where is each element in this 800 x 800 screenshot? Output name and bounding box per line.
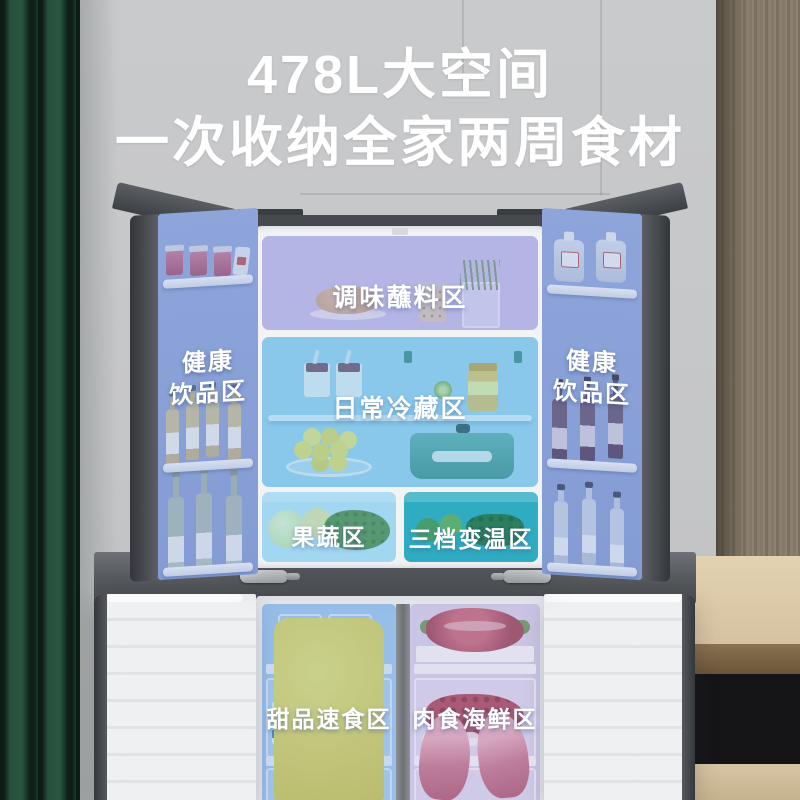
zone-seasoning-label: 调味蘸料区: [262, 278, 538, 314]
zone-seasoning: 调味蘸料区: [262, 236, 538, 330]
zone-daily: 日常冷藏区: [262, 337, 538, 487]
zone-variable-temp: 三档变温区: [404, 492, 538, 562]
fridge-right-door: 健康 饮品区: [542, 208, 670, 582]
zone-drinks-left-label: 健康 饮品区: [158, 344, 258, 412]
sideboard-shelf: [695, 644, 800, 674]
sideboard-niche: [695, 674, 800, 764]
zone-dessert: 甜品速食区: [262, 604, 396, 800]
fridge-cabinet-interior: 调味蘸料区 日常冷藏区 果蔬区: [250, 226, 550, 568]
label-line: 饮品区: [158, 375, 258, 412]
door-interior-panel: 健康 饮品区: [542, 208, 642, 580]
fridge-left-door: 健康 饮品区: [130, 208, 258, 582]
freezer-divider: [396, 604, 410, 800]
door-interior-panel: 健康 饮品区: [158, 208, 258, 580]
freezer-right-door: [544, 594, 695, 800]
headline-line-2: 一次收纳全家两周食材: [0, 98, 800, 177]
zone-produce: 果蔬区: [262, 492, 396, 562]
door-outer-shell: [642, 214, 670, 582]
product-marketing-image: 478L大空间 一次收纳全家两周食材 甜品速食区: [0, 0, 800, 800]
door-latch: [392, 228, 408, 235]
zone-meat-label: 肉食海鲜区: [410, 700, 540, 734]
sideboard-bottom: [695, 764, 800, 800]
zone-drinks-right-label: 健康 饮品区: [542, 344, 642, 412]
sideboard-cabinet: [695, 556, 800, 800]
freezer-left-door: [94, 594, 256, 800]
label-line: 饮品区: [542, 375, 642, 412]
wall-seam: [300, 193, 610, 195]
freezer-interior: 甜品速食区 肉食海鲜区: [256, 596, 546, 800]
zone-meat: 肉食海鲜区: [410, 604, 540, 800]
door-outer-shell: [130, 214, 158, 582]
sideboard-top: [695, 556, 800, 644]
zone-variable-label: 三档变温区: [404, 520, 538, 554]
zone-dessert-label: 甜品速食区: [262, 700, 396, 734]
zone-daily-label: 日常冷藏区: [262, 389, 538, 425]
zone-produce-label: 果蔬区: [262, 518, 396, 552]
